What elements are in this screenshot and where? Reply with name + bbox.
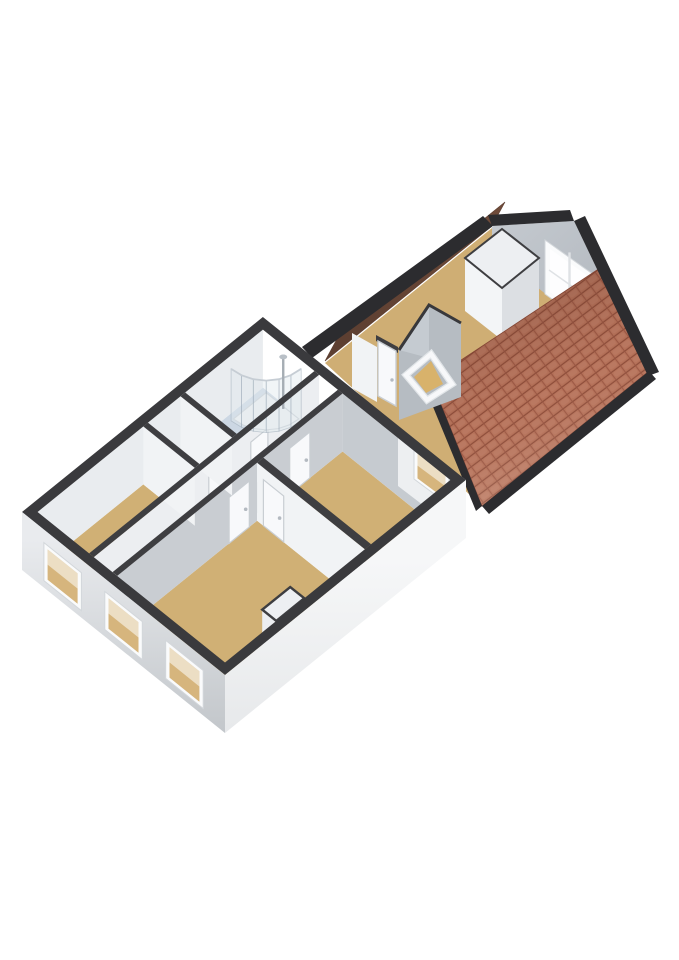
door-handle xyxy=(305,458,309,462)
shower-glass-panel xyxy=(231,369,241,427)
floor-plan-svg xyxy=(0,0,679,960)
door-handle xyxy=(278,516,282,520)
door xyxy=(378,341,396,406)
door-handle xyxy=(390,378,393,381)
shower-glass-panel xyxy=(291,369,301,427)
shower-head xyxy=(279,354,287,359)
floor-plan-render: 3D floor plan render xyxy=(0,0,679,960)
door-handle xyxy=(244,507,248,511)
